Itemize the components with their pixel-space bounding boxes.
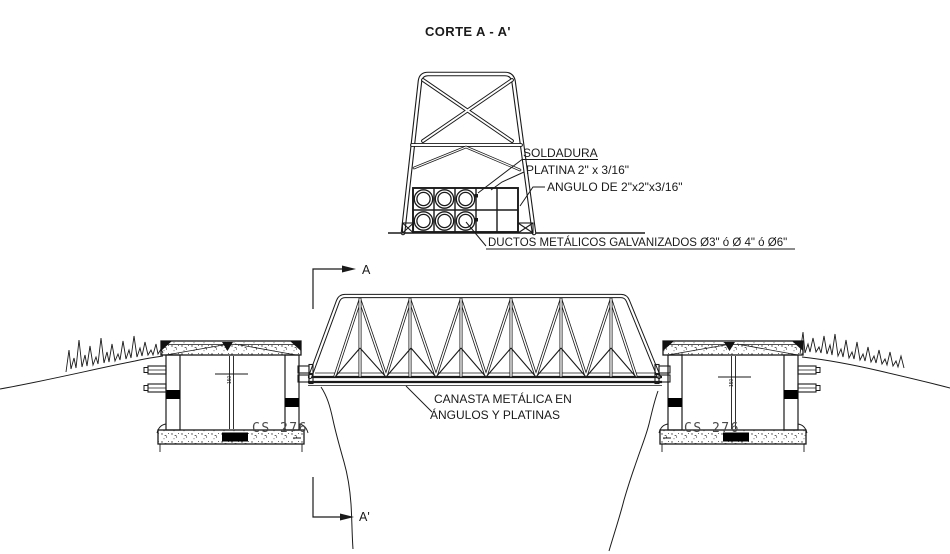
center-dimension: 150: [215, 356, 248, 429]
center-dimension: 150: [718, 356, 751, 429]
section-letter-top: A: [362, 263, 371, 277]
label-platina: PLATINA 2" x 3/16": [526, 163, 629, 177]
corner-brace-right: [518, 223, 533, 233]
drawing-title: CORTE A - A': [425, 24, 511, 39]
label-ductos: DUCTOS METÁLICOS GALVANIZADOS Ø3" ó Ø 4"…: [488, 236, 787, 249]
section-letter-bottom: A': [359, 510, 370, 524]
pipe-stubs-left: [144, 366, 166, 392]
pipe-stubs-right: [798, 366, 820, 392]
cross-section-view: CORTE A - A': [388, 24, 795, 249]
chamber-label-left: CS 276: [252, 421, 308, 436]
label-angulo: ANGULO DE 2"x2"x3/16": [547, 180, 683, 194]
right-chamber: 150 CS 276: [655, 341, 820, 452]
dim-text-right: 150: [729, 378, 735, 387]
label-canasta-line2: ÁNGULOS Y PLATINAS: [430, 407, 560, 422]
left-chamber: 150 CS 276: [144, 341, 313, 452]
sump-block: [222, 433, 248, 442]
leader-canasta: [406, 386, 432, 412]
elevation-view: A A': [0, 263, 950, 551]
dim-text-left: 150: [227, 375, 233, 384]
ravine-left-wall: [321, 387, 353, 549]
weld-dot-bottom: [475, 218, 479, 222]
technical-drawing-page: CORTE A - A': [0, 0, 950, 554]
canasta-label: CANASTA METÁLICA EN ÁNGULOS Y PLATINAS: [406, 386, 572, 422]
ravine-right-wall: [609, 391, 658, 551]
duct-grid: [413, 188, 518, 232]
section-arrow-top: [342, 266, 356, 273]
chamber-label-right: CS 276: [684, 421, 740, 436]
chevron-brace: [414, 147, 520, 170]
weld-dot-top: [475, 194, 479, 198]
truss-bridge: [308, 296, 662, 386]
corte-a-a-drawing: CORTE A - A': [0, 0, 950, 554]
label-soldadura: SOLDADURA: [523, 146, 598, 160]
support-frame: [403, 74, 534, 233]
section-marker-bottom: A': [313, 477, 370, 524]
leader-angulo: [520, 187, 545, 206]
grass-right: [800, 332, 904, 368]
right-wall: [285, 355, 299, 430]
label-canasta-line1: CANASTA METÁLICA EN: [434, 391, 572, 406]
bridge-anchor-left: [298, 365, 313, 384]
